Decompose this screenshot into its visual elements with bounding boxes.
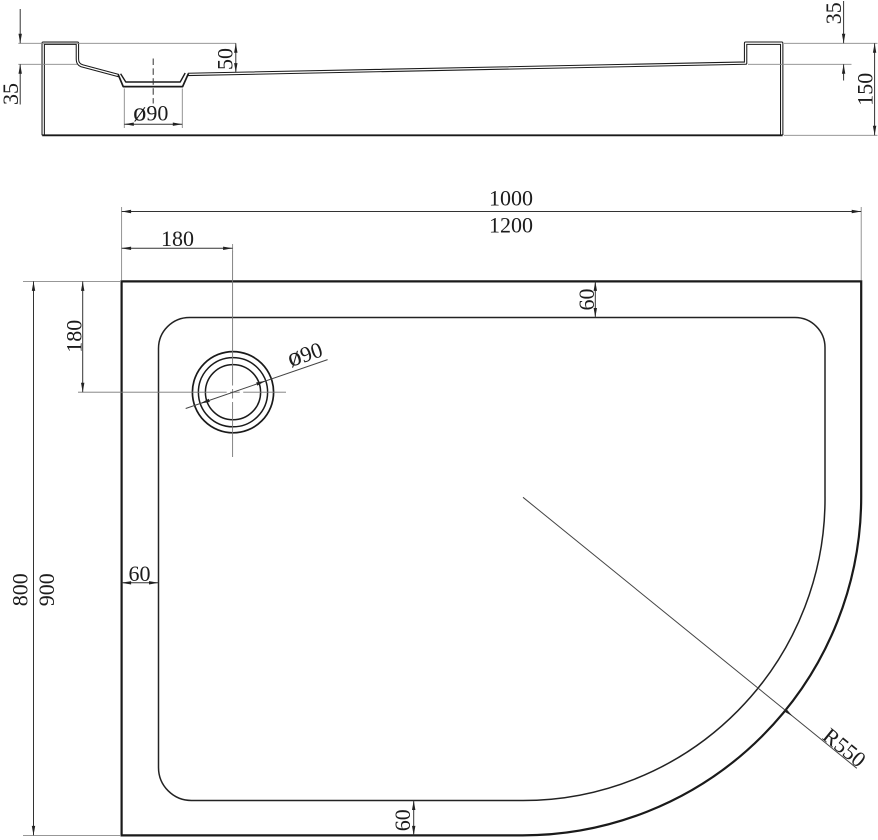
svg-text:150: 150 [853,73,878,106]
svg-text:1200: 1200 [489,213,533,238]
svg-text:60: 60 [129,561,151,586]
svg-text:60: 60 [390,809,415,831]
svg-text:60: 60 [574,289,599,311]
svg-text:50: 50 [212,48,237,70]
svg-text:1000: 1000 [489,185,533,210]
svg-text:900: 900 [34,573,59,606]
svg-text:ø90: ø90 [133,96,168,126]
svg-text:R550: R550 [818,723,871,772]
svg-text:35: 35 [821,2,846,24]
svg-text:180: 180 [61,320,86,353]
svg-text:ø90: ø90 [283,333,326,373]
svg-text:35: 35 [0,83,23,105]
svg-text:800: 800 [8,573,33,606]
svg-text:180: 180 [161,226,194,251]
